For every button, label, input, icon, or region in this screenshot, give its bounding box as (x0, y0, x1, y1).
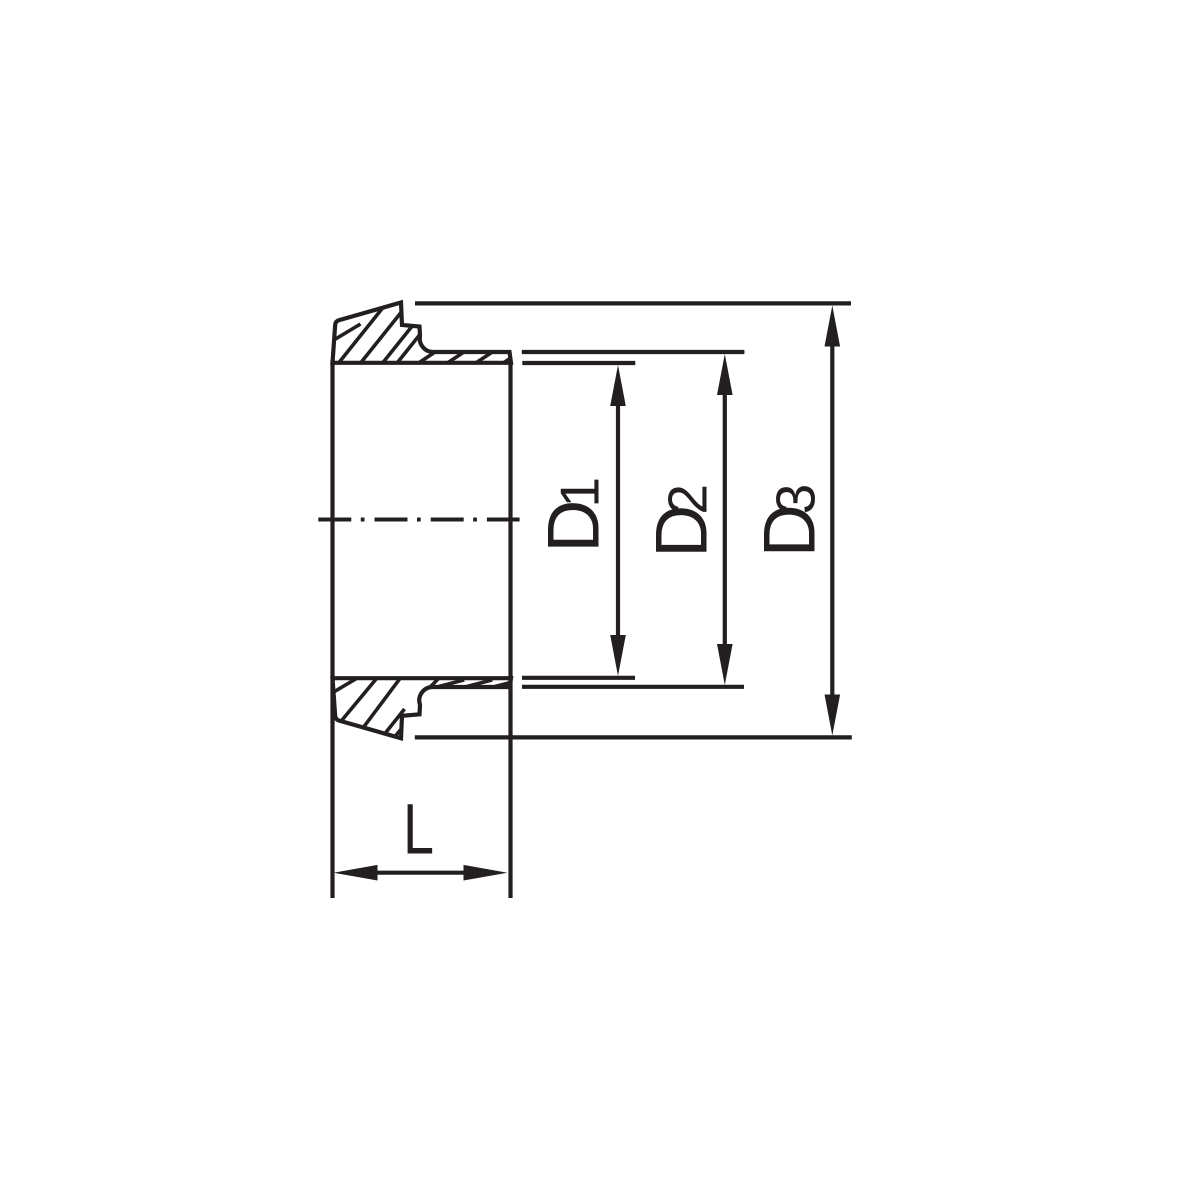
svg-text:L: L (403, 790, 434, 869)
